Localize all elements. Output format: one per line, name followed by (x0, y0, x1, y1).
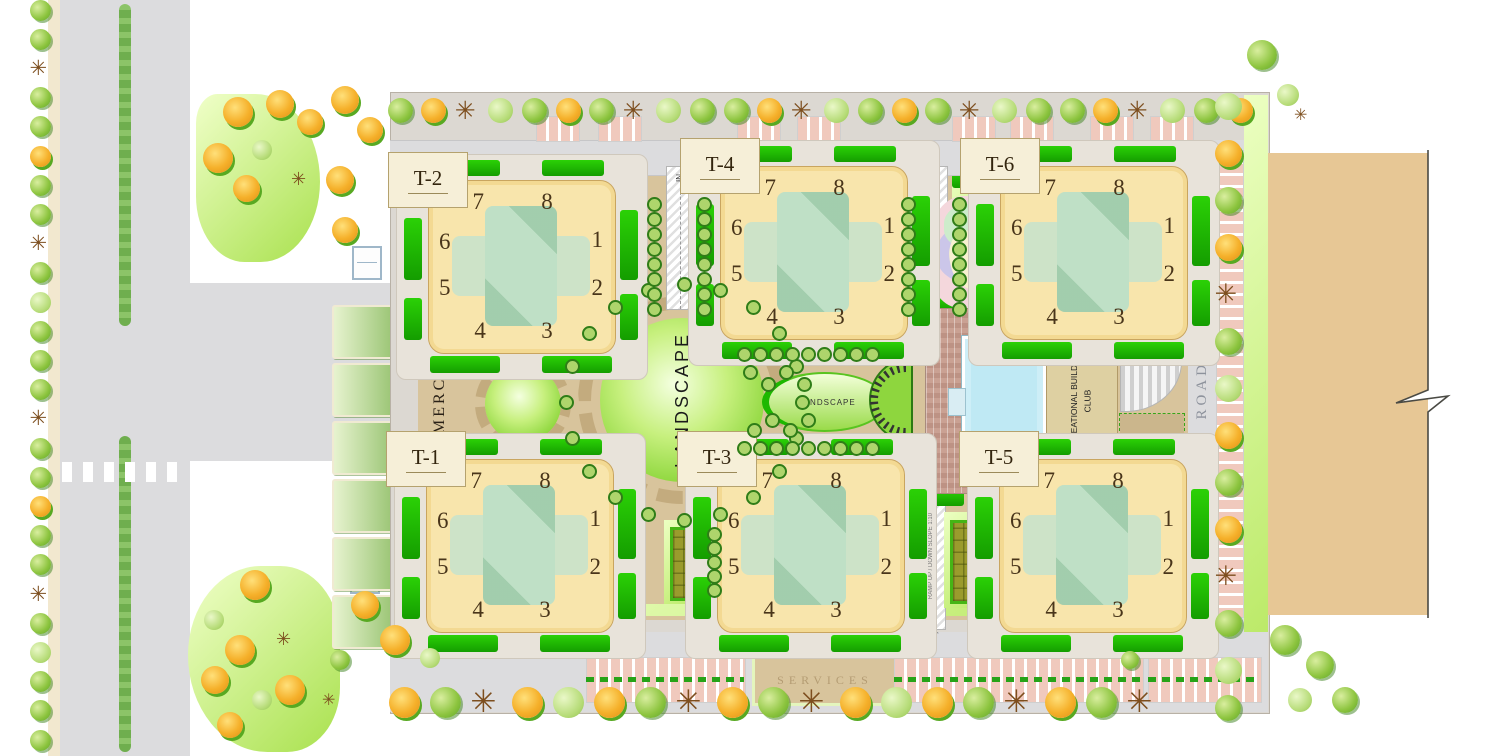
tower-label: T-1 (406, 445, 446, 473)
unit-number[interactable]: 3 (830, 597, 842, 623)
unit-number[interactable]: 5 (731, 261, 743, 287)
tree-icon (553, 687, 584, 718)
tree-icon (724, 98, 749, 123)
unit-number[interactable]: 8 (1112, 468, 1124, 494)
tree-icon (1270, 625, 1300, 655)
hedge-block (1002, 342, 1072, 359)
tree-icon (203, 143, 233, 173)
hedge-block (975, 497, 993, 559)
zebra-crossing (62, 462, 188, 482)
shrub-icon (849, 441, 864, 456)
tree-icon: ✳ (1215, 281, 1238, 308)
unit-number[interactable]: 5 (728, 554, 740, 580)
unit-number[interactable]: 3 (1112, 597, 1124, 623)
tree-icon (30, 438, 51, 459)
unit-number[interactable]: 8 (539, 468, 551, 494)
tree-icon (1215, 140, 1242, 167)
shrub-icon (707, 527, 722, 542)
tree-icon (1215, 375, 1242, 402)
tree-icon (1060, 98, 1085, 123)
tree-icon: ✳ (799, 687, 825, 718)
shrub-icon (737, 441, 752, 456)
hedge-block (976, 204, 994, 266)
tree-icon: ✳ (1294, 107, 1307, 123)
hedge-block (1113, 439, 1175, 455)
unit-number[interactable]: 3 (541, 318, 553, 344)
tower-core: T-3 (677, 431, 757, 487)
unit-number[interactable]: 2 (1164, 261, 1176, 287)
tower-label: T-5 (979, 445, 1019, 473)
east-road-label: ROAD (1194, 361, 1211, 420)
tree-icon (388, 98, 413, 123)
tree-icon (512, 687, 543, 718)
hedge-block (540, 635, 610, 652)
unit-number[interactable]: 4 (1046, 304, 1058, 330)
unit-number[interactable]: 8 (1113, 175, 1125, 201)
tower-core: T-4 (680, 138, 760, 194)
tree-icon (389, 687, 420, 718)
tree-icon (30, 554, 51, 575)
tree-icon (30, 525, 51, 546)
shrub-icon (952, 242, 967, 257)
shrub-icon (833, 441, 848, 456)
tower-label: T-6 (980, 152, 1020, 180)
unit-number[interactable]: 3 (833, 304, 845, 330)
shrub-icon (769, 347, 784, 362)
tree-icon: ✳ (676, 687, 702, 718)
hedge-block (912, 280, 930, 326)
tree-icon (275, 675, 305, 705)
tree-icon (522, 98, 547, 123)
tower-core: T-2 (388, 152, 468, 208)
shrub-icon (746, 300, 761, 315)
unit-number[interactable]: 2 (1163, 554, 1175, 580)
shrub-icon (647, 197, 662, 212)
tree-icon (30, 175, 51, 196)
tree-icon (1215, 422, 1242, 449)
shrub-icon (647, 212, 662, 227)
shrub-icon (707, 555, 722, 570)
shrub-icon (901, 272, 916, 287)
unit-number[interactable]: 4 (1045, 597, 1057, 623)
shrub-icon (697, 242, 712, 257)
shrub-icon (697, 272, 712, 287)
tree-icon (30, 350, 51, 371)
tree-icon (556, 98, 581, 123)
tree-icon: ✳ (623, 98, 644, 123)
shrub-icon (783, 423, 798, 438)
shrub-icon (801, 441, 816, 456)
break-line (1380, 140, 1470, 640)
shrub-icon (833, 347, 848, 362)
unit-number[interactable]: 3 (539, 597, 551, 623)
unit-number[interactable]: 4 (474, 318, 486, 344)
shrub-icon (647, 287, 662, 302)
east-green-strip (1244, 95, 1268, 712)
tree-icon (380, 625, 410, 655)
tree-icon (30, 87, 51, 108)
parking-hedge-line (1148, 677, 1260, 682)
hedge-block (402, 497, 420, 559)
shrub-icon (865, 347, 880, 362)
unit-number[interactable]: 4 (472, 597, 484, 623)
shrub-icon (901, 257, 916, 272)
tree-icon (30, 321, 51, 342)
pool-steps (948, 388, 966, 416)
hedge-block (1113, 635, 1183, 652)
shrub-icon (952, 257, 967, 272)
shrub-icon (677, 513, 692, 528)
shrub-icon (901, 227, 916, 242)
unit-number[interactable]: 7 (761, 468, 773, 494)
tree-icon: ✳ (471, 687, 497, 718)
shrub-icon (801, 347, 816, 362)
tower-courtyard (1057, 192, 1129, 312)
shrub-icon (559, 395, 574, 410)
hedge-block (909, 573, 927, 619)
hedge-block (542, 160, 604, 176)
tower-T-3[interactable]: T-378615243 (717, 459, 903, 631)
tree-icon (1215, 93, 1242, 120)
hedge-block (834, 146, 896, 162)
unit-number[interactable]: 6 (1011, 215, 1023, 241)
shrub-icon (901, 197, 916, 212)
shrub-icon (697, 257, 712, 272)
tree-icon (656, 98, 681, 123)
shrub-icon (707, 569, 722, 584)
tree-icon (1215, 695, 1241, 721)
tree-icon (992, 98, 1017, 123)
tree-icon (824, 98, 849, 123)
tower-T-1[interactable]: T-178615243 (426, 459, 612, 631)
shrub-icon (565, 359, 580, 374)
tree-icon (225, 635, 255, 665)
tree-icon (1215, 328, 1242, 355)
tree-icon: ✳ (30, 233, 48, 254)
shrub-icon (647, 242, 662, 257)
unit-number[interactable]: 3 (1113, 304, 1125, 330)
shrub-icon (795, 395, 810, 410)
unit-number[interactable]: 7 (1044, 175, 1056, 201)
shrub-icon (697, 287, 712, 302)
tree-icon (1277, 84, 1299, 106)
tree-icon (1215, 610, 1242, 637)
shrub-icon (769, 441, 784, 456)
shrub-icon (817, 441, 832, 456)
tree-icon (30, 204, 51, 225)
unit-number[interactable]: 1 (592, 227, 604, 253)
unit-number[interactable]: 7 (1043, 468, 1055, 494)
unit-number[interactable]: 2 (884, 261, 896, 287)
shrub-icon (647, 302, 662, 317)
tree-icon (758, 687, 789, 718)
tree-icon (1026, 98, 1051, 123)
tree-icon (30, 29, 51, 50)
tree-icon (297, 109, 323, 135)
unit-number[interactable]: 6 (731, 215, 743, 241)
tree-icon (757, 98, 782, 123)
unit-number[interactable]: 8 (541, 189, 553, 215)
tree-icon (892, 98, 917, 123)
shrub-icon (901, 287, 916, 302)
unit-number[interactable]: 1 (884, 213, 896, 239)
shrub-icon (952, 212, 967, 227)
tree-icon (1247, 40, 1277, 70)
road-median-hedge (119, 4, 131, 326)
tree-icon (30, 671, 51, 692)
tree-icon (881, 687, 912, 718)
shrub-icon (865, 441, 880, 456)
tower-label: T-2 (408, 166, 448, 194)
tree-icon (252, 140, 272, 160)
tree-icon (421, 98, 446, 123)
tree-icon (240, 570, 270, 600)
tree-icon (1215, 657, 1242, 684)
tree-icon (30, 292, 51, 313)
tree-icon: ✳ (276, 631, 291, 649)
shrub-icon (761, 377, 776, 392)
tree-icon: ✳ (30, 408, 48, 429)
unit-number[interactable]: 6 (1010, 508, 1022, 534)
tree-icon (351, 591, 379, 619)
tower-core: T-6 (960, 138, 1040, 194)
hedge-block (693, 577, 711, 619)
shrub-icon (743, 365, 758, 380)
parking-hedge-line (894, 677, 1142, 682)
unit-number[interactable]: 1 (1164, 213, 1176, 239)
unit-number[interactable]: 7 (472, 189, 484, 215)
tree-icon (1045, 687, 1076, 718)
tower-courtyard (483, 485, 555, 605)
tree-icon (1086, 687, 1117, 718)
tree-icon (1215, 469, 1242, 496)
left-sidewalk (48, 0, 60, 756)
unit-number[interactable]: 5 (439, 275, 451, 301)
hedge-block (976, 284, 994, 326)
shrub-icon (647, 227, 662, 242)
shrub-icon (747, 423, 762, 438)
tower-courtyard (485, 206, 557, 326)
tree-icon (1215, 516, 1242, 543)
tree-icon (30, 496, 51, 517)
hedge-block (719, 635, 789, 652)
tower-core: T-5 (959, 431, 1039, 487)
unit-number[interactable]: 5 (1011, 261, 1023, 287)
hedge-block (909, 489, 927, 559)
tree-icon (594, 687, 625, 718)
shrub-icon (901, 302, 916, 317)
tree-icon: ✳ (1004, 687, 1030, 718)
unit-number[interactable]: 7 (764, 175, 776, 201)
tower-label: T-3 (697, 445, 737, 473)
tree-icon (922, 687, 953, 718)
tree-icon (690, 98, 715, 123)
tree-icon (223, 97, 253, 127)
unit-number[interactable]: 7 (470, 468, 482, 494)
tree-icon: ✳ (1127, 687, 1153, 718)
unit-number[interactable]: 6 (728, 508, 740, 534)
unit-number[interactable]: 6 (437, 508, 449, 534)
tower-core: T-1 (386, 431, 466, 487)
shrub-icon (647, 257, 662, 272)
unit-number[interactable]: 8 (830, 468, 842, 494)
shrub-icon (901, 242, 916, 257)
tree-icon (266, 90, 294, 118)
tree-icon (30, 0, 51, 21)
hedge-block (975, 577, 993, 619)
hedge-block (831, 635, 901, 652)
tree-icon (30, 700, 51, 721)
tree-icon (30, 642, 51, 663)
shrub-icon (797, 377, 812, 392)
tree-icon (201, 666, 229, 694)
shrub-icon (817, 347, 832, 362)
hedge-block (1114, 342, 1184, 359)
shrub-icon (952, 272, 967, 287)
tree-icon (326, 166, 354, 194)
hedge-block (618, 573, 636, 619)
tree-icon: ✳ (30, 58, 48, 79)
tree-icon: ✳ (291, 171, 306, 189)
shrub-icon (697, 197, 712, 212)
tree-icon (589, 98, 614, 123)
hedge-block (1192, 280, 1210, 326)
tree-icon: ✳ (30, 584, 48, 605)
shrub-icon (697, 212, 712, 227)
shrub-icon (707, 583, 722, 598)
shrub-icon (779, 365, 794, 380)
parking-hedge-line (586, 677, 744, 682)
shrub-icon (697, 227, 712, 242)
tree-icon (1215, 187, 1242, 214)
shrub-icon (849, 347, 864, 362)
tower-courtyard (774, 485, 846, 605)
hedge-block (430, 356, 500, 373)
shrub-icon (707, 541, 722, 556)
tree-icon (252, 690, 272, 710)
hedge-block (404, 218, 422, 280)
tree-icon (1306, 651, 1334, 679)
hedge-block (1192, 196, 1210, 266)
tree-icon: ✳ (1215, 563, 1238, 590)
hedge-block (620, 294, 638, 340)
tree-icon (30, 730, 51, 751)
tree-icon (1093, 98, 1118, 123)
tree-icon (30, 146, 51, 167)
tree-icon (30, 467, 51, 488)
shrub-icon (801, 413, 816, 428)
unit-number[interactable]: 5 (1010, 554, 1022, 580)
shrub-icon (582, 326, 597, 341)
unit-number[interactable]: 1 (881, 506, 893, 532)
hedge-block (1114, 146, 1176, 162)
tree-icon (217, 712, 243, 738)
hedge-block (402, 577, 420, 619)
tree-icon (488, 98, 513, 123)
shrub-icon (952, 227, 967, 242)
gate-west-north (352, 246, 382, 280)
shrub-icon (901, 212, 916, 227)
tree-icon (30, 613, 51, 634)
tree-icon (963, 687, 994, 718)
tree-icon (840, 687, 871, 718)
shrub-icon (753, 347, 768, 362)
tree-icon (925, 98, 950, 123)
unit-number[interactable]: 5 (437, 554, 449, 580)
tree-icon (858, 98, 883, 123)
hedge-block (1001, 635, 1071, 652)
tree-icon (30, 116, 51, 137)
unit-number[interactable]: 8 (833, 175, 845, 201)
shrub-icon (697, 302, 712, 317)
tree-icon (717, 687, 748, 718)
tree-icon (1215, 234, 1242, 261)
tree-icon (233, 175, 260, 202)
shrub-icon (608, 300, 623, 315)
unit-number[interactable]: 2 (590, 554, 602, 580)
tree-icon (204, 610, 224, 630)
tree-icon (1288, 688, 1312, 712)
tree-icon (332, 217, 358, 243)
tower-T-5[interactable]: T-578615243 (999, 459, 1185, 631)
unit-number[interactable]: 2 (881, 554, 893, 580)
tree-icon (30, 262, 51, 283)
unit-number[interactable]: 2 (592, 275, 604, 301)
shrub-icon (765, 413, 780, 428)
tree-icon (331, 86, 359, 114)
hedge-block (404, 298, 422, 340)
tower-T-6[interactable]: T-678615243 (1000, 166, 1186, 338)
tower-courtyard (777, 192, 849, 312)
shrub-icon (753, 441, 768, 456)
unit-number[interactable]: 6 (439, 229, 451, 255)
shrub-icon (641, 507, 656, 522)
site-plan: COMMERCIAL ROAD ROAD SERVICES LANDSCAPE … (0, 0, 1500, 756)
tree-icon: ✳ (455, 98, 476, 123)
tree-icon (330, 650, 350, 670)
tree-icon (357, 117, 383, 143)
shrub-icon (952, 302, 967, 317)
shrub-icon (677, 277, 692, 292)
tree-icon (635, 687, 666, 718)
tree-icon: ✳ (959, 98, 980, 123)
hedge-block (428, 635, 498, 652)
shrub-icon (952, 287, 967, 302)
tree-icon (430, 687, 461, 718)
ramp-note: RAMP UP / DOWN SLOPE 1:10 (928, 513, 934, 599)
road-median-hedge (119, 436, 131, 752)
unit-number[interactable]: 1 (590, 506, 602, 532)
tree-icon (1332, 687, 1358, 713)
hedge-block (1191, 489, 1209, 559)
tree-icon (30, 379, 51, 400)
tree-icon: ✳ (1127, 98, 1148, 123)
unit-number[interactable]: 4 (763, 597, 775, 623)
shrub-icon (785, 441, 800, 456)
hedge-block (620, 210, 638, 280)
tree-icon: ✳ (322, 692, 335, 708)
shrub-icon (737, 347, 752, 362)
shrub-icon (785, 347, 800, 362)
tree-icon (1160, 98, 1185, 123)
tower-label: T-4 (700, 152, 740, 180)
tower-courtyard (1056, 485, 1128, 605)
shrub-icon (647, 272, 662, 287)
services-label: SERVICES (777, 673, 873, 688)
tree-icon (1121, 651, 1139, 669)
shrub-icon (582, 464, 597, 479)
unit-number[interactable]: 1 (1163, 506, 1175, 532)
